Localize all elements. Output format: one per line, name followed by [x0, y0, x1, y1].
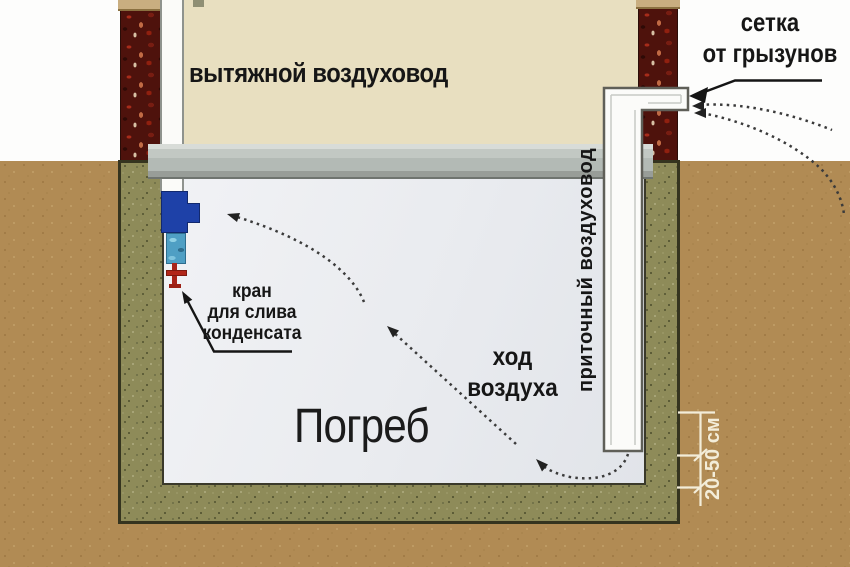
label-air-flow: ход воздуха — [447, 342, 578, 404]
airflow-arrow-bottom — [541, 454, 628, 478]
intake-arrow-lower — [702, 113, 844, 214]
arrowhead-diagonal — [387, 326, 399, 338]
label-exhaust-duct: вытяжной воздуховод — [189, 58, 448, 89]
arrowhead-bottom — [536, 459, 548, 472]
diagram-canvas: вытяжной воздуховод сетка от грызунов кр… — [0, 0, 850, 567]
arrowhead-top — [227, 213, 240, 222]
arrowhead-intake-upper — [692, 101, 704, 112]
leader-arrowhead-mesh — [689, 87, 708, 103]
intake-arrow-upper — [700, 105, 832, 130]
leader-rodent-mesh — [699, 81, 822, 95]
label-rodent-mesh: сетка от грызунов — [702, 7, 838, 69]
label-dimension: 20-50 см — [702, 400, 730, 518]
supply-duct-pipe — [604, 88, 688, 451]
label-supply-duct: приточный воздуховод — [575, 130, 605, 410]
arrowhead-intake-lower — [694, 108, 706, 118]
label-cellar: Погреб — [294, 399, 429, 454]
label-condensate-tap: кран для слива конденсата — [182, 281, 322, 344]
